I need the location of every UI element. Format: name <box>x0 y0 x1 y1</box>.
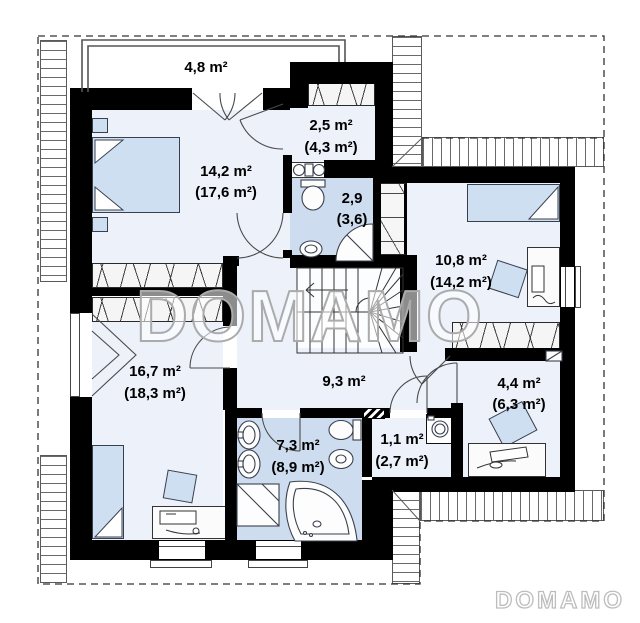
wall <box>392 167 575 183</box>
closet-wardrobe-room <box>308 82 375 106</box>
wall <box>70 88 92 313</box>
balcony-door-frame <box>70 313 80 397</box>
roof-hatch-band-left-upper <box>40 40 67 282</box>
wall <box>302 540 362 560</box>
roof-hatch-band-bottom-right <box>420 490 604 521</box>
roof-hatch-band-top-right <box>422 137 604 167</box>
wall <box>223 368 237 410</box>
window-sill <box>150 560 212 568</box>
sink-counter <box>290 162 326 178</box>
watermark-corner: DOMAMO <box>495 587 625 614</box>
room-hall <box>237 348 463 410</box>
window <box>560 266 575 308</box>
stairwell <box>297 268 403 353</box>
single-bed-bedroom-3 <box>92 445 124 539</box>
wall <box>223 296 237 326</box>
wall <box>560 183 575 266</box>
desk <box>468 443 546 477</box>
desk <box>152 506 228 539</box>
floor-plan: DOMAMO DOMAMO 4,8 m² 14,2 m² (17,6 m²) 2… <box>0 0 640 623</box>
double-bed <box>92 137 180 213</box>
window <box>255 540 302 560</box>
label-terrace: 4,8 m² <box>184 59 227 76</box>
closet-bedroom-2 <box>452 322 560 349</box>
wall <box>362 480 393 560</box>
hall-upper <box>237 263 297 348</box>
room-wardrobe <box>290 106 375 162</box>
wall <box>451 403 463 477</box>
wall <box>290 84 308 108</box>
wall <box>92 288 223 296</box>
closet-shelves <box>380 183 407 255</box>
wall <box>560 308 575 490</box>
desk <box>527 247 560 307</box>
wall <box>263 88 290 110</box>
closet-bedroom-3 <box>92 297 223 322</box>
wall <box>427 408 451 418</box>
nightstand <box>92 118 108 133</box>
wall <box>283 155 292 213</box>
window <box>158 540 206 560</box>
room-bathroom-small <box>290 178 375 255</box>
roof-hatch-band-left-lower <box>40 455 67 583</box>
single-bed-bedroom-2 <box>467 184 560 222</box>
washing-machine <box>426 414 454 444</box>
wall <box>237 408 262 418</box>
wall <box>445 348 563 361</box>
closet-bedroom-1 <box>92 263 223 288</box>
wall <box>324 160 375 178</box>
wall <box>300 408 372 418</box>
nightstand <box>92 217 108 232</box>
wall <box>206 540 255 560</box>
wall <box>223 263 237 296</box>
wall <box>70 397 92 560</box>
office-chair <box>163 470 198 504</box>
roof-hatch-band-bottom-right-vertical <box>392 490 420 584</box>
window-sill <box>575 266 581 308</box>
wall <box>290 255 413 268</box>
vent-grate <box>363 408 385 419</box>
wall <box>223 256 239 266</box>
wall <box>225 410 237 540</box>
roof-hatch-band-top-right-vertical <box>392 36 422 167</box>
wall <box>372 477 575 492</box>
wall <box>373 162 381 255</box>
room-bathroom <box>237 418 362 540</box>
wall <box>400 255 417 352</box>
window-sill <box>248 560 308 568</box>
